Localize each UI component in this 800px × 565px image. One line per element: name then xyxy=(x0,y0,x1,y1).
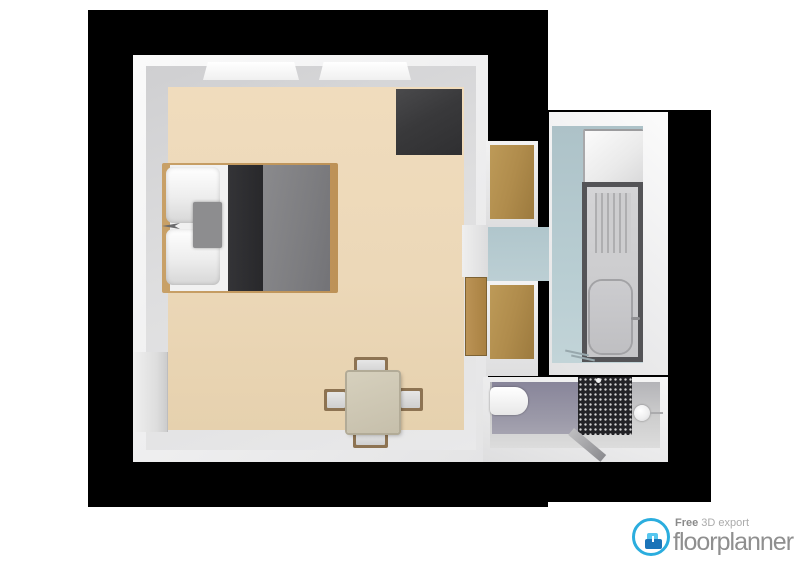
toilet xyxy=(490,387,528,415)
floorplanner-watermark: Free 3D export floorplanner xyxy=(628,514,800,562)
bathroom-cabinet xyxy=(583,129,643,184)
chair-seat xyxy=(327,392,345,408)
bed-duvet xyxy=(263,165,330,291)
closet xyxy=(486,141,538,227)
closet-wood-top xyxy=(490,145,534,219)
chair xyxy=(324,389,348,411)
bedroom-door-opening xyxy=(462,225,488,277)
floorplan-3d-export: Free 3D export floorplanner xyxy=(0,0,800,565)
sink-icon xyxy=(634,405,650,421)
bedroom-door-leaf xyxy=(466,278,486,355)
double-bed xyxy=(162,163,338,293)
dining-table xyxy=(347,372,399,433)
bed-blanket-fold xyxy=(228,165,263,291)
chair xyxy=(353,431,388,448)
wardrobe xyxy=(396,89,462,155)
bathtub-handle xyxy=(631,317,640,320)
window-icon xyxy=(319,62,411,80)
bathtub xyxy=(582,182,643,362)
hallway-floor xyxy=(486,227,552,281)
chair xyxy=(398,388,423,411)
chair-seat xyxy=(401,391,420,408)
closet-wood-top xyxy=(490,285,534,359)
logo-glyph-divider xyxy=(652,536,654,542)
shower-head xyxy=(596,378,601,383)
shower-panel xyxy=(578,377,632,435)
dining-set xyxy=(322,355,424,450)
brand-logotype: floorplanner xyxy=(673,528,793,557)
door-recess xyxy=(133,352,168,432)
bathtub-drainboard xyxy=(595,193,631,253)
bathtub-basin xyxy=(590,281,631,353)
window-icon xyxy=(203,62,299,80)
bed-cushion xyxy=(193,202,222,248)
sink-faucet xyxy=(650,412,663,414)
floorplanner-logo-icon xyxy=(632,518,670,556)
chair-seat xyxy=(356,434,385,445)
closet xyxy=(486,281,538,376)
bathtub-inner xyxy=(587,187,638,357)
